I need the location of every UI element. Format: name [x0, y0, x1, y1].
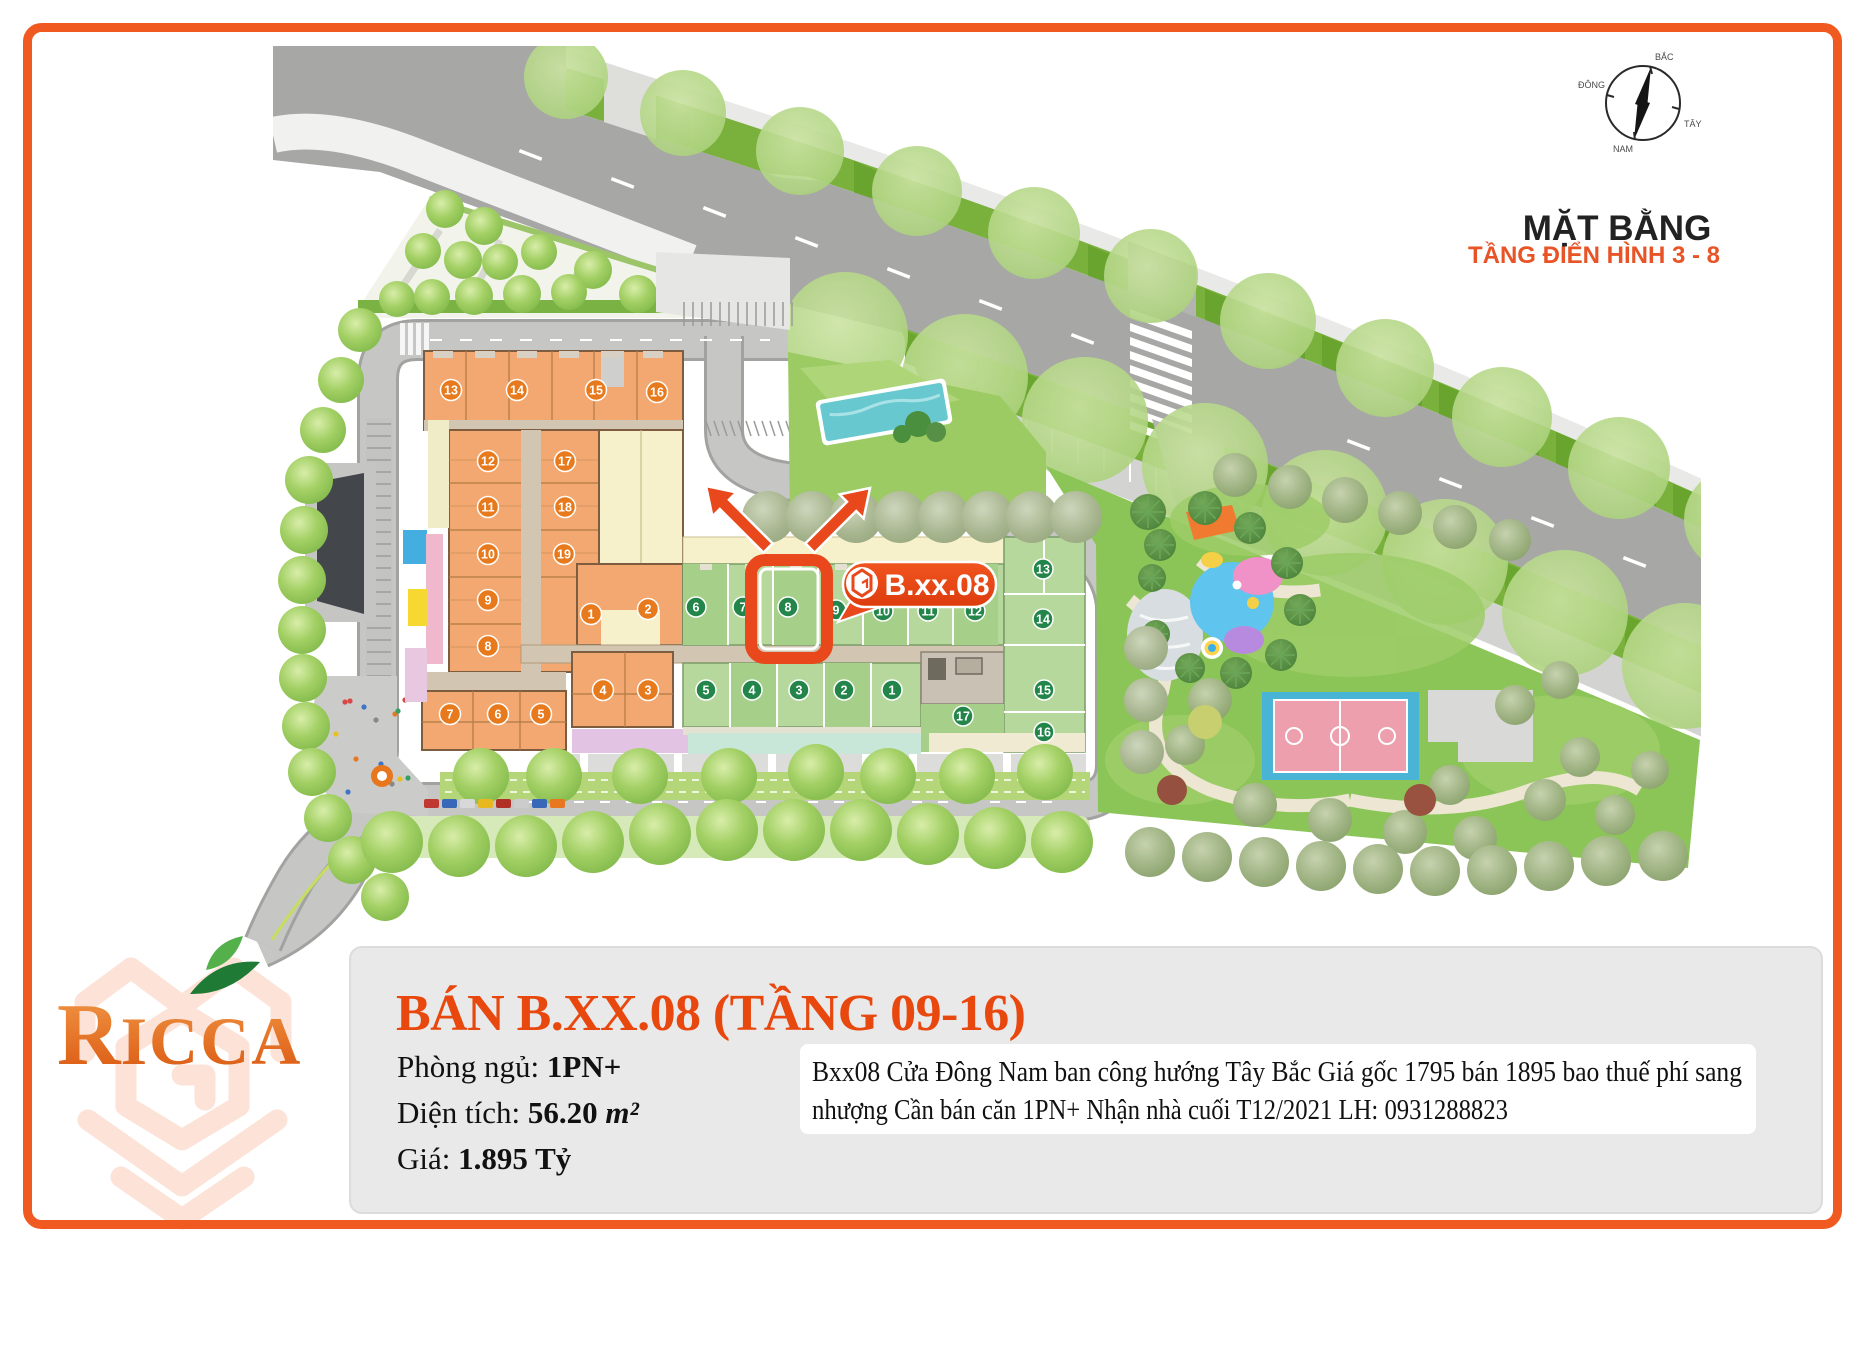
svg-text:8: 8 [485, 640, 492, 654]
svg-text:TÂY: TÂY [1684, 119, 1702, 129]
svg-text:9: 9 [485, 594, 492, 608]
svg-text:9: 9 [833, 604, 840, 618]
svg-text:BÁN B.XX.08 (TẦNG 09-16): BÁN B.XX.08 (TẦNG 09-16) [396, 982, 1026, 1042]
svg-text:10: 10 [481, 548, 495, 562]
svg-text:16: 16 [650, 386, 664, 400]
svg-text:Phòng ngủ: 1PN+: Phòng ngủ: 1PN+ [397, 1049, 621, 1084]
svg-text:2: 2 [645, 603, 652, 617]
svg-text:2: 2 [841, 684, 848, 698]
svg-text:6: 6 [693, 601, 700, 615]
svg-text:nhượng Cần bán căn 1PN+ Nhận n: nhượng Cần bán căn 1PN+ Nhận nhà cuối T1… [812, 1095, 1508, 1126]
svg-text:BẮC: BẮC [1655, 52, 1674, 62]
svg-text:3: 3 [796, 684, 803, 698]
svg-text:17: 17 [558, 455, 572, 469]
svg-text:7: 7 [447, 708, 454, 722]
svg-text:16: 16 [1037, 726, 1051, 740]
svg-text:13: 13 [444, 384, 458, 398]
svg-text:Giá: 1.895 Tỷ: Giá: 1.895 Tỷ [397, 1141, 572, 1176]
svg-text:12: 12 [481, 455, 495, 469]
svg-text:4: 4 [600, 684, 607, 698]
svg-text:5: 5 [703, 684, 710, 698]
svg-text:Diện tích: 56.20 m²: Diện tích: 56.20 m² [397, 1095, 639, 1130]
svg-text:11: 11 [481, 501, 494, 515]
svg-text:5: 5 [538, 708, 545, 722]
svg-text:NAM: NAM [1613, 144, 1633, 154]
svg-text:14: 14 [510, 384, 524, 398]
svg-text:19: 19 [557, 548, 571, 562]
svg-text:Bxx08 Cửa Đông Nam ban công hư: Bxx08 Cửa Đông Nam ban công hướng Tây Bắ… [812, 1057, 1742, 1088]
svg-text:1: 1 [588, 608, 595, 622]
svg-text:4: 4 [749, 684, 756, 698]
svg-text:1: 1 [889, 684, 896, 698]
svg-text:B.xx.08: B.xx.08 [884, 569, 989, 602]
svg-text:18: 18 [558, 501, 572, 515]
svg-text:6: 6 [495, 708, 502, 722]
svg-text:15: 15 [589, 384, 603, 398]
svg-text:3: 3 [645, 684, 652, 698]
svg-text:15: 15 [1037, 684, 1051, 698]
svg-text:ĐÔNG: ĐÔNG [1578, 80, 1605, 90]
svg-text:17: 17 [956, 710, 970, 724]
svg-text:8: 8 [785, 601, 792, 615]
svg-text:14: 14 [1036, 613, 1050, 627]
svg-text:TẦNG ĐIỂN HÌNH 3 - 8: TẦNG ĐIỂN HÌNH 3 - 8 [1468, 241, 1720, 269]
svg-text:13: 13 [1036, 563, 1050, 577]
